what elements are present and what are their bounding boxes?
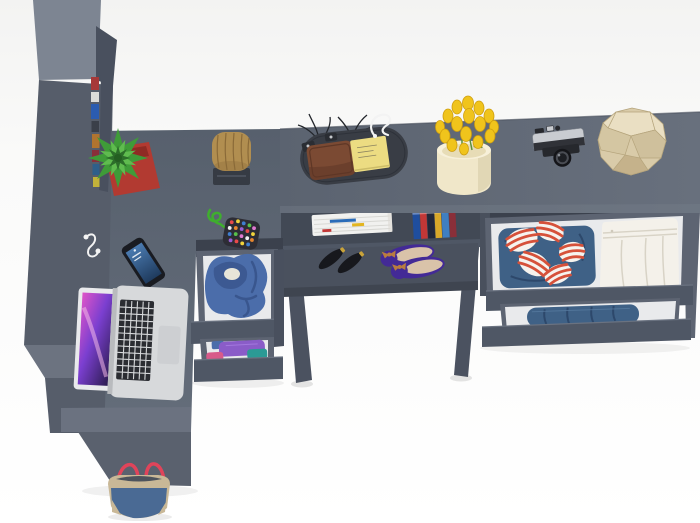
under-desk-shelves [281,205,480,297]
middle-drawer-unit [191,238,284,382]
denim-jacket [205,252,267,318]
sticky-note-pad [350,136,390,173]
plant-fronds [88,128,148,188]
middle-drawer2-front [194,357,283,382]
slab-top [61,407,191,432]
laptop-trackpad [157,325,181,364]
right-drawer-unit [480,204,700,347]
wardrobe-top-panel [33,0,101,80]
furniture-render [0,0,700,523]
striped-shirt-on-jeans [498,218,596,289]
magazine-stack [312,211,393,236]
wicker-basket [212,132,251,185]
white-pants [600,218,679,291]
leather-wallet [306,140,356,181]
middle-unit-side [274,249,284,347]
laptop [73,283,189,401]
